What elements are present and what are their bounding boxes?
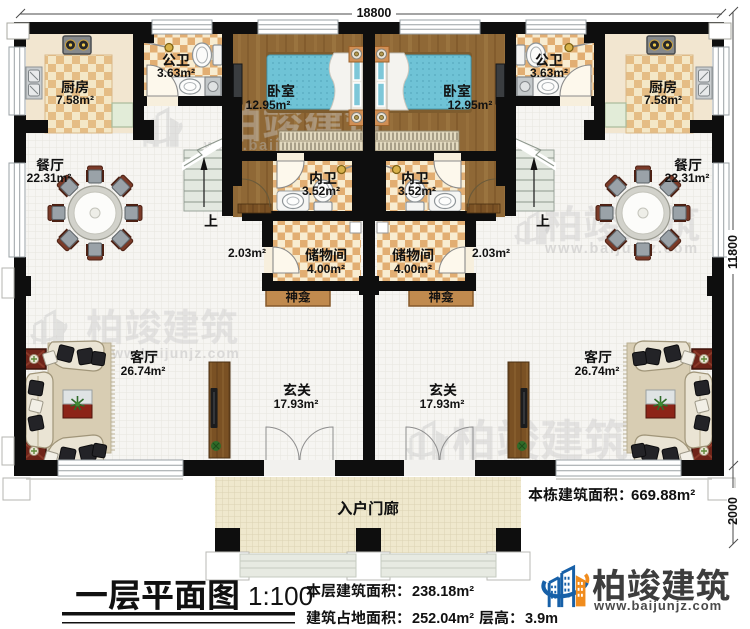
svg-text:4.00m²: 4.00m²: [307, 262, 345, 276]
svg-text:www.baijunjz.com: www.baijunjz.com: [593, 598, 722, 613]
svg-text:www.baijunjz.com: www.baijunjz.com: [99, 345, 240, 361]
svg-text:2000: 2000: [726, 497, 740, 525]
svg-text:4.00m²: 4.00m²: [394, 262, 432, 276]
svg-text:238.18m²: 238.18m²: [412, 584, 474, 600]
svg-text:3.52m²: 3.52m²: [302, 184, 340, 198]
svg-text:2.03m²: 2.03m²: [472, 246, 510, 260]
svg-text:22.31m²: 22.31m²: [27, 171, 72, 185]
svg-text:3.9m: 3.9m: [525, 611, 558, 627]
svg-text:18800: 18800: [357, 6, 392, 20]
svg-text:1:100: 1:100: [248, 581, 313, 611]
svg-text:26.74m²: 26.74m²: [575, 364, 620, 378]
svg-text:11800: 11800: [726, 235, 740, 269]
svg-text:3.63m²: 3.63m²: [530, 66, 568, 80]
svg-text:3.63m²: 3.63m²: [157, 66, 195, 80]
svg-text:252.04m²: 252.04m²: [412, 611, 474, 627]
svg-text:7.58m²: 7.58m²: [56, 93, 94, 107]
svg-text:3.52m²: 3.52m²: [398, 184, 436, 198]
svg-text:12.95m²: 12.95m²: [246, 98, 291, 112]
svg-text:7.58m²: 7.58m²: [644, 93, 682, 107]
svg-text:17.93m²: 17.93m²: [420, 397, 465, 411]
svg-text:22.31m²: 22.31m²: [665, 171, 710, 185]
svg-text:2.03m²: 2.03m²: [228, 246, 266, 260]
svg-text:669.88m²: 669.88m²: [631, 487, 695, 504]
svg-text:26.74m²: 26.74m²: [121, 364, 166, 378]
svg-text:17.93m²: 17.93m²: [274, 397, 319, 411]
svg-text:12.95m²: 12.95m²: [448, 98, 493, 112]
